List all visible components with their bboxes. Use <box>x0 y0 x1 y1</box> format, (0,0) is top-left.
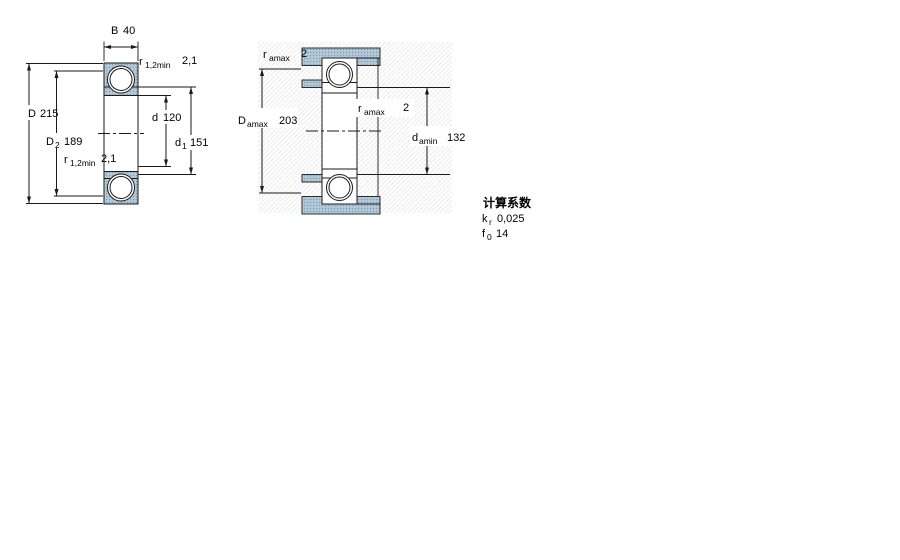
dimension-D2: D 2 189 <box>44 71 103 196</box>
dimension-D2-label: D 2 189 <box>46 136 82 151</box>
arrowhead <box>164 96 168 103</box>
dimension-r-top-label: r 1,2min 2,1 <box>139 55 197 71</box>
arrowhead <box>189 87 193 94</box>
bearing-cross-section-left: B 40 D 215 D 2 <box>26 25 213 204</box>
dimension-D-label: D 215 <box>28 108 58 120</box>
arrowhead <box>164 160 168 167</box>
bearing-technical-drawing: B 40 D 215 D 2 <box>0 0 900 560</box>
arrowhead <box>27 197 31 204</box>
ball-bottom <box>110 177 132 199</box>
dimension-ra-mid: r amax 2 <box>355 99 415 118</box>
dimension-B-label: B 40 <box>111 25 135 37</box>
arrowhead <box>27 64 31 71</box>
ball-bottom <box>329 177 350 198</box>
shaft-shoulder-bottom <box>302 175 322 183</box>
dimension-d-label: d 120 <box>152 112 181 124</box>
ball-top <box>110 69 132 91</box>
arrowhead <box>55 71 59 78</box>
arrowhead <box>104 45 111 49</box>
dimension-B: B 40 <box>104 25 138 61</box>
ball-top <box>329 64 350 85</box>
dimension-d: d 120 <box>139 96 186 167</box>
arrowhead <box>131 45 138 49</box>
bearing-mounted-section-right: D amax 203 d amin 132 r amax 2 <box>236 42 471 214</box>
arrowhead <box>189 168 193 175</box>
arrowhead <box>55 189 59 196</box>
bearing-drawing-page: B 40 D 215 D 2 <box>0 0 900 560</box>
shaft-shoulder-top <box>302 80 322 88</box>
factor-kr: k r 0,025 <box>482 213 525 228</box>
dimension-d1: d 1 151 <box>139 87 214 175</box>
calculation-factors-heading: 计算系数 <box>483 195 532 210</box>
factor-f0: f 0 14 <box>482 228 508 243</box>
calculation-factors-block: 计算系数 k r 0,025 f 0 14 <box>482 195 532 243</box>
